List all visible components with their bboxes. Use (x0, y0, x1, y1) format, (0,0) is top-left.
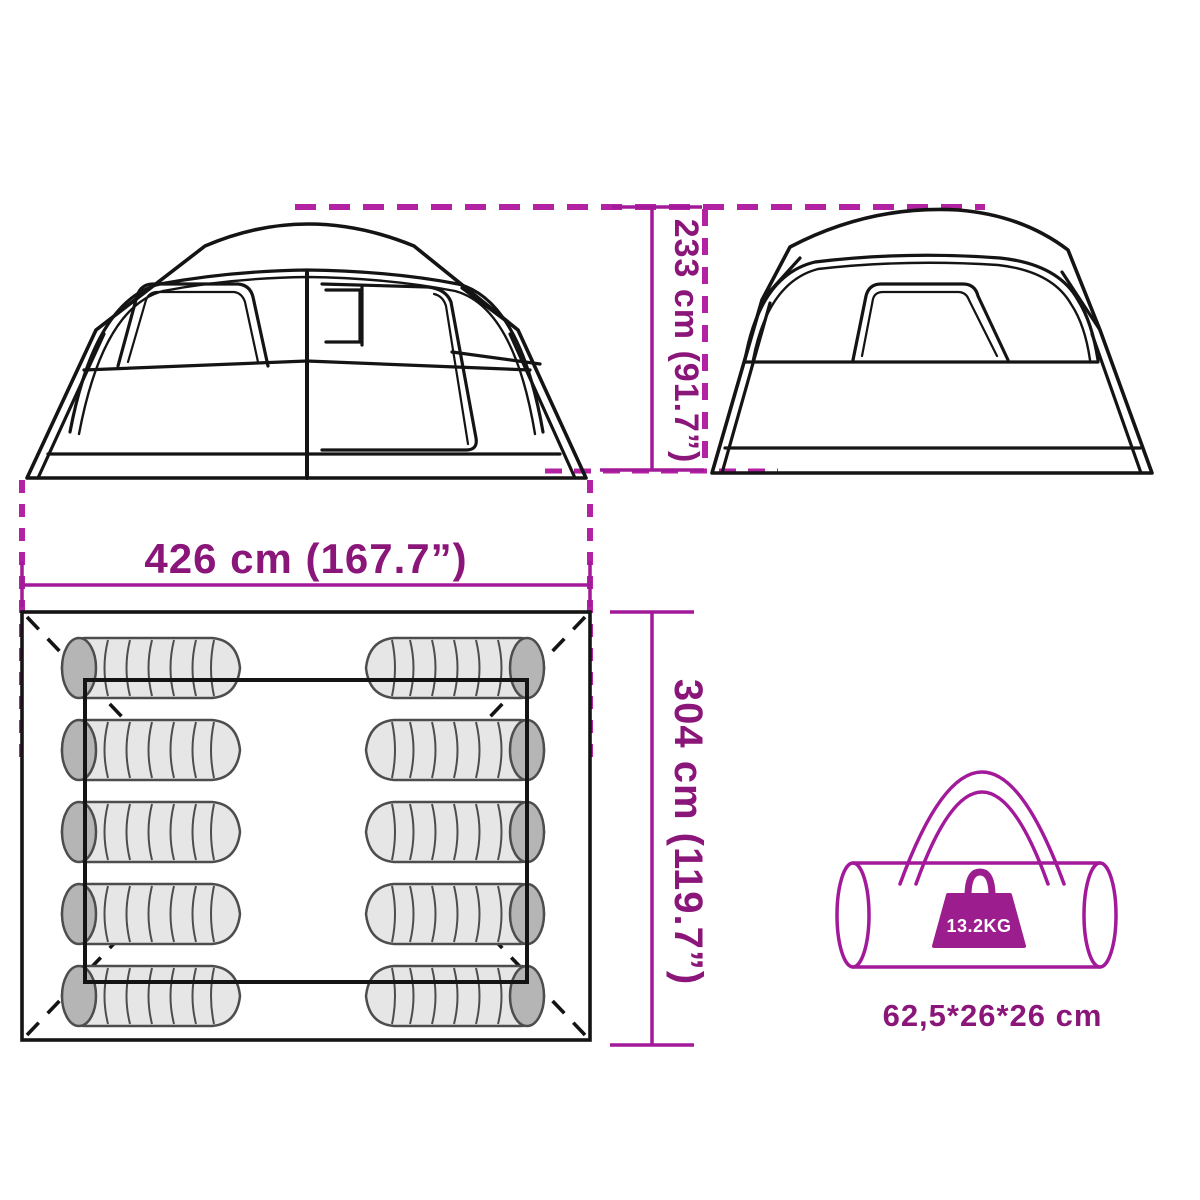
weight-badge-label: 13.2KG (933, 914, 1025, 938)
diagram-canvas: 426 cm (167.7”) 233 cm (91.7”) 304 cm (1… (0, 0, 1200, 1200)
tent-side-view-drawing (712, 209, 1152, 473)
tent-front-view-drawing (27, 224, 586, 478)
carry-bag-size-label: 62,5*26*26 cm (845, 998, 1140, 1034)
height-dimension-label: 233 cm (91.7”) (664, 210, 708, 472)
width-dimension-label: 426 cm (167.7”) (22, 536, 590, 582)
depth-dimension-label: 304 cm (119.7”) (664, 616, 712, 1048)
floor-plan-drawing (22, 612, 590, 1040)
